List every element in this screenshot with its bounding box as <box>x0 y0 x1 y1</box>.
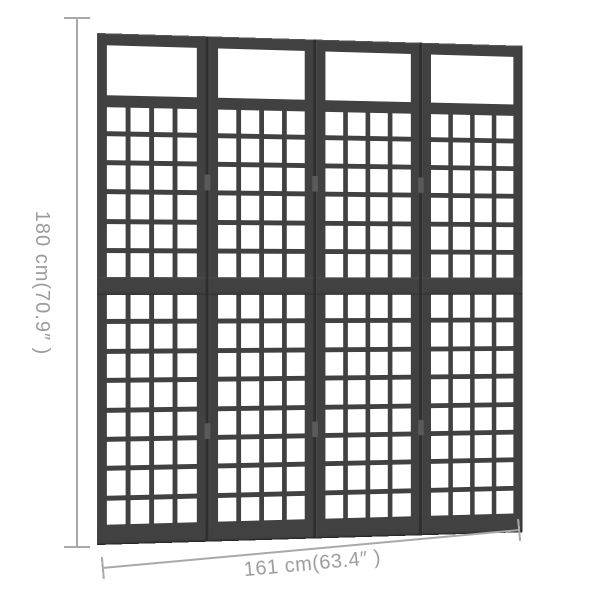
trellis-opening <box>287 140 305 164</box>
width-dimension-label: 161 cm(63.4″ ) <box>102 534 522 595</box>
trellis-opening <box>107 165 126 189</box>
trellis-opening <box>131 499 150 524</box>
divider-panel-4 <box>420 43 523 536</box>
trellis-opening <box>131 412 150 437</box>
trellis-opening <box>107 471 126 496</box>
trellis-opening <box>348 226 366 250</box>
trellis-opening <box>325 295 343 319</box>
trellis-opening <box>496 199 513 222</box>
trellis-opening <box>496 379 513 402</box>
trellis-opening <box>218 110 236 134</box>
trellis-opening <box>496 351 513 374</box>
trellis-opening <box>431 295 448 318</box>
panel-bottom-rail <box>208 519 314 542</box>
trellis-opening <box>393 436 411 460</box>
panel-bottom-rail <box>97 522 206 545</box>
trellis-opening <box>431 407 448 431</box>
trellis-opening <box>431 379 448 403</box>
trellis-opening <box>131 108 150 132</box>
trellis-opening <box>393 493 411 517</box>
trellis-opening <box>370 141 388 165</box>
trellis-opening <box>287 467 305 491</box>
trellis-opening <box>453 295 470 318</box>
panel-top-opening <box>218 48 305 99</box>
trellis-opening <box>393 295 411 319</box>
trellis-opening <box>178 353 197 377</box>
hinge <box>312 176 318 192</box>
trellis-opening <box>264 254 282 278</box>
panel-top-opening <box>325 52 410 103</box>
trellis-opening <box>287 495 305 519</box>
trellis-opening <box>287 381 305 405</box>
hinge <box>204 423 210 439</box>
trellis-opening <box>264 381 282 405</box>
trellis-opening <box>325 169 343 193</box>
trellis-opening <box>348 112 366 136</box>
trellis-opening <box>453 115 470 138</box>
trellis-opening <box>264 496 282 520</box>
trellis-opening <box>107 224 126 248</box>
lower-trellis-grid <box>107 295 196 525</box>
trellis-opening <box>218 167 236 191</box>
trellis-opening <box>325 323 343 347</box>
trellis-opening <box>154 295 173 319</box>
trellis-opening <box>474 295 491 318</box>
trellis-opening <box>107 500 126 525</box>
trellis-opening <box>348 494 366 518</box>
trellis-opening <box>393 408 411 432</box>
trellis-opening <box>325 466 343 490</box>
trellis-opening <box>325 437 343 461</box>
trellis-opening <box>474 254 491 277</box>
trellis-opening <box>107 195 126 219</box>
trellis-opening <box>325 254 343 278</box>
trellis-opening <box>287 295 305 319</box>
trellis-opening <box>453 407 470 431</box>
trellis-opening <box>154 195 173 219</box>
trellis-opening <box>154 108 173 132</box>
trellis-opening <box>264 225 282 249</box>
trellis-opening <box>453 379 470 403</box>
trellis-opening <box>218 253 236 277</box>
trellis-opening <box>370 352 388 376</box>
trellis-opening <box>107 441 126 466</box>
product-dimension-diagram: 180 cm(70.9″ ) 161 cm(63.4″ ) <box>0 0 600 600</box>
trellis-opening <box>496 171 513 194</box>
trellis-opening <box>107 107 126 131</box>
trellis-opening <box>474 199 491 222</box>
trellis-opening <box>474 407 491 431</box>
trellis-opening <box>241 439 259 463</box>
trellis-opening <box>287 168 305 192</box>
trellis-opening <box>287 111 305 135</box>
trellis-opening <box>453 170 470 193</box>
trellis-opening <box>496 295 513 318</box>
trellis-opening <box>241 468 259 492</box>
trellis-opening <box>154 253 173 277</box>
trellis-opening <box>393 113 411 137</box>
height-dimension-bottom-cap <box>64 546 90 548</box>
trellis-opening <box>154 411 173 435</box>
trellis-opening <box>325 112 343 136</box>
trellis-opening <box>241 110 259 134</box>
trellis-opening <box>178 382 197 406</box>
trellis-opening <box>178 253 197 277</box>
trellis-opening <box>154 137 173 161</box>
trellis-opening <box>325 409 343 433</box>
panel-bottom-rail <box>316 516 420 538</box>
trellis-opening <box>453 435 470 459</box>
trellis-opening <box>241 353 259 377</box>
trellis-opening <box>107 412 126 437</box>
trellis-opening <box>178 166 197 190</box>
trellis-opening <box>218 324 236 348</box>
trellis-opening <box>370 408 388 432</box>
divider-panel-1 <box>97 33 206 545</box>
trellis-opening <box>393 380 411 404</box>
trellis-opening <box>107 136 126 160</box>
height-dimension-top-cap <box>64 17 90 19</box>
trellis-opening <box>131 137 150 161</box>
trellis-opening <box>496 434 513 458</box>
divider-panel-2 <box>206 36 314 541</box>
trellis-opening <box>474 323 491 346</box>
lower-trellis-grid <box>218 295 305 522</box>
panel-top-opening <box>107 45 196 97</box>
trellis-opening <box>474 351 491 374</box>
trellis-opening <box>431 323 448 346</box>
hinge <box>418 420 423 435</box>
trellis-opening <box>496 490 513 514</box>
trellis-opening <box>325 197 343 221</box>
trellis-opening <box>264 139 282 163</box>
trellis-opening <box>218 295 236 319</box>
trellis-opening <box>178 324 197 348</box>
trellis-opening <box>154 353 173 377</box>
trellis-opening <box>287 438 305 462</box>
trellis-opening <box>264 352 282 376</box>
trellis-opening <box>393 198 411 221</box>
trellis-opening <box>325 380 343 404</box>
trellis-opening <box>218 225 236 249</box>
trellis-opening <box>131 441 150 466</box>
trellis-opening <box>348 197 366 221</box>
trellis-opening <box>370 380 388 404</box>
trellis-opening <box>154 470 173 495</box>
trellis-opening <box>431 170 448 193</box>
panel-middle-rail <box>97 277 206 295</box>
trellis-opening <box>218 497 236 521</box>
upper-trellis-grid <box>218 110 305 278</box>
trellis-opening <box>131 324 150 348</box>
trellis-opening <box>131 353 150 377</box>
trellis-opening <box>241 410 259 434</box>
panel-middle-rail <box>421 277 522 294</box>
trellis-opening <box>474 379 491 402</box>
trellis-opening <box>241 167 259 191</box>
trellis-opening <box>370 113 388 137</box>
hinge <box>418 177 423 192</box>
trellis-opening <box>348 169 366 193</box>
trellis-opening <box>474 115 491 138</box>
room-divider <box>97 33 522 545</box>
trellis-opening <box>496 255 513 278</box>
trellis-opening <box>178 224 197 248</box>
trellis-opening <box>348 295 366 319</box>
trellis-opening <box>474 171 491 194</box>
trellis-opening <box>393 170 411 194</box>
trellis-opening <box>370 437 388 461</box>
trellis-opening <box>287 197 305 221</box>
trellis-opening <box>107 253 126 277</box>
hinge <box>204 174 210 190</box>
trellis-opening <box>264 295 282 319</box>
lower-trellis-grid <box>431 295 514 516</box>
trellis-opening <box>178 440 197 464</box>
trellis-opening <box>431 114 448 138</box>
trellis-opening <box>393 141 411 165</box>
trellis-opening <box>218 353 236 377</box>
trellis-opening <box>393 226 411 249</box>
trellis-opening <box>474 491 491 515</box>
trellis-opening <box>496 116 513 139</box>
trellis-opening <box>264 168 282 192</box>
trellis-opening <box>154 499 173 524</box>
trellis-opening <box>393 351 411 375</box>
lower-trellis-grid <box>325 295 410 519</box>
trellis-opening <box>264 324 282 348</box>
trellis-opening <box>431 226 448 249</box>
trellis-opening <box>496 143 513 166</box>
trellis-opening <box>241 253 259 277</box>
trellis-opening <box>218 138 236 162</box>
trellis-opening <box>264 196 282 220</box>
trellis-opening <box>154 166 173 190</box>
trellis-opening <box>370 169 388 193</box>
trellis-opening <box>474 435 491 459</box>
trellis-opening <box>131 195 150 219</box>
trellis-opening <box>178 469 197 494</box>
trellis-opening <box>154 441 173 466</box>
trellis-opening <box>241 497 259 521</box>
trellis-opening <box>218 382 236 406</box>
trellis-opening <box>370 295 388 319</box>
trellis-opening <box>154 382 173 406</box>
upper-trellis-grid <box>325 112 410 278</box>
trellis-opening <box>474 227 491 250</box>
trellis-opening <box>241 381 259 405</box>
trellis-opening <box>393 323 411 347</box>
trellis-opening <box>131 295 150 319</box>
trellis-opening <box>178 109 197 133</box>
trellis-opening <box>325 140 343 164</box>
trellis-opening <box>370 493 388 517</box>
trellis-opening <box>287 409 305 433</box>
trellis-opening <box>453 491 470 515</box>
trellis-opening <box>131 253 150 277</box>
trellis-opening <box>131 470 150 495</box>
trellis-opening <box>131 224 150 248</box>
trellis-opening <box>453 463 470 487</box>
trellis-opening <box>348 409 366 433</box>
trellis-opening <box>107 324 126 348</box>
trellis-opening <box>178 195 197 219</box>
trellis-opening <box>325 495 343 519</box>
trellis-opening <box>348 380 366 404</box>
panel-middle-rail <box>316 277 420 295</box>
trellis-opening <box>241 324 259 348</box>
trellis-opening <box>431 198 448 221</box>
trellis-opening <box>325 225 343 249</box>
trellis-opening <box>431 464 448 488</box>
trellis-opening <box>370 226 388 249</box>
trellis-opening <box>241 139 259 163</box>
upper-trellis-grid <box>107 107 196 277</box>
trellis-opening <box>453 226 470 249</box>
trellis-opening <box>218 439 236 463</box>
divider-panel-3 <box>314 40 419 539</box>
panel-top-opening <box>431 55 514 105</box>
trellis-opening <box>431 254 448 277</box>
trellis-opening <box>431 436 448 460</box>
trellis-opening <box>370 465 388 489</box>
panel-middle-rail <box>208 277 314 295</box>
trellis-opening <box>107 295 126 319</box>
trellis-opening <box>348 352 366 376</box>
trellis-opening <box>453 351 470 374</box>
trellis-opening <box>431 142 448 165</box>
trellis-opening <box>131 383 150 407</box>
trellis-opening <box>241 295 259 319</box>
trellis-opening <box>178 411 197 435</box>
trellis-opening <box>287 324 305 348</box>
trellis-opening <box>154 224 173 248</box>
trellis-opening <box>218 196 236 220</box>
trellis-opening <box>131 166 150 190</box>
trellis-opening <box>325 352 343 376</box>
trellis-opening <box>107 383 126 408</box>
trellis-opening <box>287 225 305 249</box>
hinge <box>312 421 318 437</box>
trellis-opening <box>218 468 236 492</box>
trellis-opening <box>393 465 411 489</box>
trellis-opening <box>496 462 513 486</box>
trellis-opening <box>453 143 470 166</box>
trellis-opening <box>178 295 197 319</box>
trellis-opening <box>241 225 259 249</box>
trellis-opening <box>431 351 448 375</box>
upper-trellis-grid <box>431 114 514 277</box>
trellis-opening <box>370 323 388 347</box>
trellis-opening <box>264 410 282 434</box>
trellis-opening <box>264 439 282 463</box>
trellis-opening <box>287 254 305 278</box>
trellis-opening <box>348 323 366 347</box>
trellis-opening <box>496 406 513 429</box>
trellis-opening <box>474 463 491 487</box>
trellis-opening <box>348 141 366 165</box>
trellis-opening <box>107 354 126 378</box>
trellis-opening <box>453 323 470 346</box>
trellis-opening <box>178 498 197 523</box>
trellis-opening <box>241 196 259 220</box>
height-dimension-label: 180 cm(70.9″ ) <box>30 211 53 355</box>
height-dimension-line <box>76 18 78 547</box>
trellis-opening <box>348 466 366 490</box>
trellis-opening <box>178 138 197 162</box>
trellis-opening <box>370 198 388 222</box>
trellis-opening <box>453 198 470 221</box>
trellis-opening <box>393 254 411 277</box>
trellis-opening <box>370 254 388 277</box>
trellis-opening <box>453 254 470 277</box>
trellis-opening <box>496 227 513 250</box>
trellis-opening <box>218 410 236 434</box>
trellis-opening <box>264 111 282 135</box>
trellis-opening <box>431 492 448 516</box>
trellis-opening <box>154 324 173 348</box>
trellis-opening <box>287 352 305 376</box>
trellis-opening <box>496 323 513 346</box>
trellis-opening <box>474 143 491 166</box>
trellis-opening <box>348 254 366 277</box>
trellis-opening <box>264 467 282 491</box>
trellis-opening <box>348 437 366 461</box>
